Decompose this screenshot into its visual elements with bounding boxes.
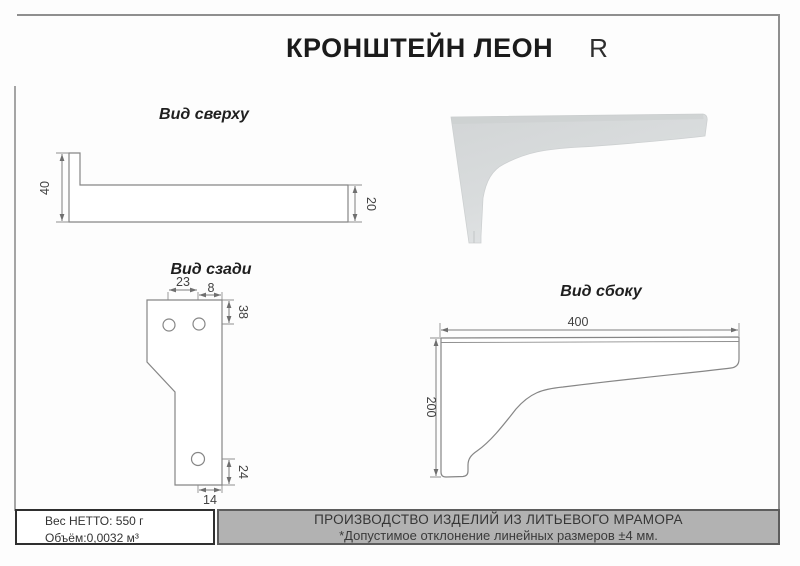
dimension-label-14: 14 <box>203 493 217 507</box>
drawing-sheet: КРОНШТЕЙН ЛЕОНR Вид сверху Вид сзади Вид… <box>0 0 800 566</box>
side-view-profile <box>441 337 739 477</box>
dimension-label-38: 38 <box>236 305 250 319</box>
side-view-drawing: 400 200 <box>420 295 760 487</box>
page-title-variant: R <box>589 33 608 63</box>
dimension-label-400: 400 <box>568 315 589 329</box>
mount-hole-top-right <box>193 318 205 330</box>
back-view-profile <box>147 300 222 485</box>
footer-spec-box: Вес НЕТТО: 550 г Объём:0,0032 м³ <box>15 509 215 545</box>
back-view-drawing: 23 8 38 24 14 <box>135 275 253 508</box>
volume-text: Объём:0,0032 м³ <box>45 531 139 545</box>
dimension-label-23: 23 <box>176 275 190 289</box>
render-silhouette <box>451 114 707 243</box>
view-label-top: Вид сверху <box>159 106 249 124</box>
sheet-border-left <box>14 86 16 511</box>
dimension-label-24: 24 <box>236 465 250 479</box>
sheet-border-top <box>17 14 780 16</box>
dimension-label-40: 40 <box>38 181 52 195</box>
page-title-main: КРОНШТЕЙН ЛЕОН <box>286 33 553 63</box>
sheet-border-right <box>778 14 780 511</box>
dimension-label-8: 8 <box>208 281 215 295</box>
page-title: КРОНШТЕЙН ЛЕОНR <box>286 33 608 64</box>
footer-production-box: ПРОИЗВОДСТВО ИЗДЕЛИЙ ИЗ ЛИТЬЕВОГО МРАМОР… <box>217 509 780 545</box>
dimension-label-200: 200 <box>424 397 438 418</box>
bracket-3d-render <box>445 105 717 253</box>
dimension-label-20: 20 <box>364 197 378 211</box>
net-weight-text: Вес НЕТТО: 550 г <box>45 514 144 528</box>
top-view-profile <box>69 153 348 222</box>
mount-hole-top-left <box>163 319 175 331</box>
tolerance-text: *Допустимое отклонение линейных размеров… <box>339 528 658 543</box>
top-view-drawing: 40 20 <box>35 142 370 234</box>
production-text: ПРОИЗВОДСТВО ИЗДЕЛИЙ ИЗ ЛИТЬЕВОГО МРАМОР… <box>314 512 683 528</box>
mount-hole-bottom <box>192 453 205 466</box>
